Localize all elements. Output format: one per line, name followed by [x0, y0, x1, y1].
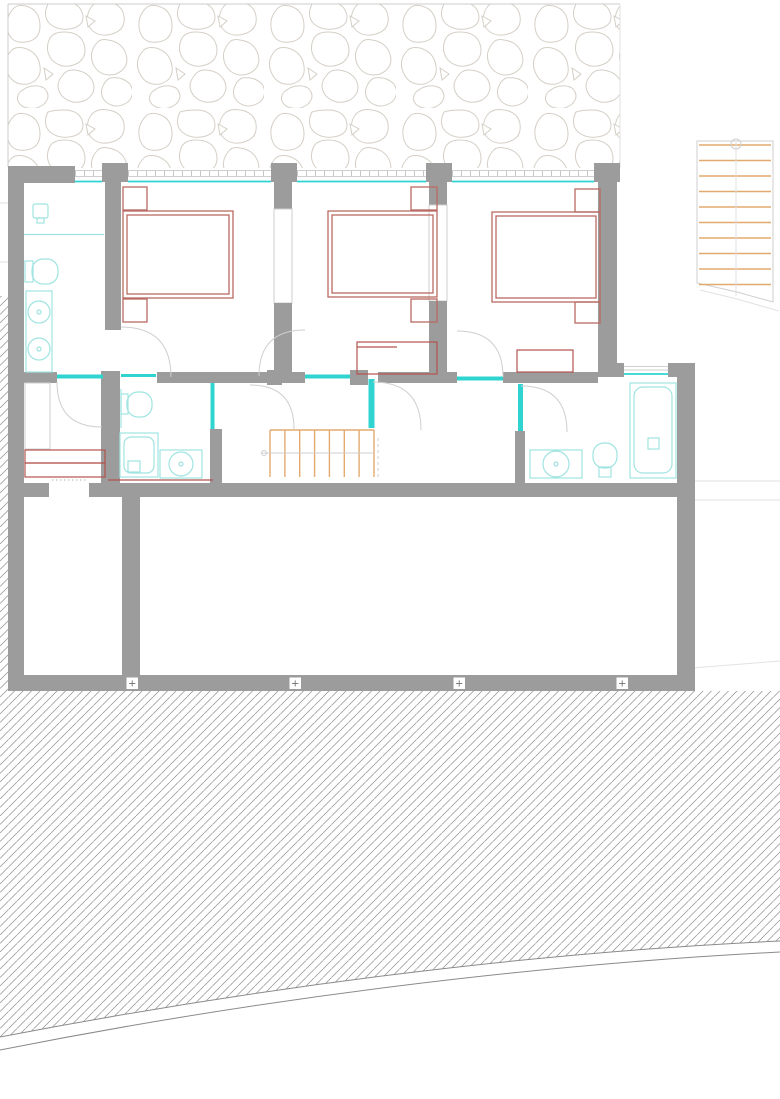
- level-marker-2: +: [289, 677, 302, 690]
- bed-1-nightstand-bottom: [123, 299, 147, 322]
- wall-bath1-bed1: [105, 182, 121, 330]
- wall-pillar-a: [102, 163, 128, 182]
- toilet-1-bowl: [32, 259, 58, 284]
- exterior-staircase: [697, 139, 779, 311]
- wall-lower-divider: [122, 492, 140, 677]
- door-arc-stair-hall: [373, 382, 421, 430]
- wall-bed2-bed3-top: [429, 182, 447, 205]
- shower-3-drain: [648, 438, 659, 449]
- terrain-line-right-3: [692, 661, 780, 668]
- wall-right-exterior: [677, 371, 695, 691]
- closet-cabinet: [25, 383, 50, 449]
- bathroom-3: [530, 383, 676, 478]
- bed-1-mattress: [127, 215, 229, 294]
- bed-3-nightstand-bottom: [575, 302, 600, 323]
- wall-mid-c: [157, 372, 268, 383]
- bathroom-1: [24, 204, 104, 372]
- sink-1a: [28, 301, 50, 323]
- bed-2-frame: [328, 211, 437, 297]
- toilet-3-bowl: [593, 443, 617, 468]
- sink-3: [543, 451, 569, 477]
- wall-bed1-bed2-top: [274, 182, 292, 209]
- stone-paving-fill: [8, 4, 620, 168]
- bed-3-nightstand-top: [575, 189, 600, 212]
- walls: [8, 163, 695, 691]
- wall-mid-pillar-2: [350, 370, 368, 385]
- bed-3-mattress: [496, 216, 596, 298]
- wall-bath3-left: [515, 431, 525, 483]
- level-marker-3-symbol: +: [455, 679, 463, 690]
- wall-floor-band: [89, 483, 695, 497]
- shower-3-tray: [634, 387, 672, 473]
- window-bathroom-right: [624, 367, 668, 375]
- wall-niche-2: [429, 205, 447, 301]
- wall-mid-a: [24, 372, 57, 383]
- interior-staircase: [262, 430, 375, 477]
- wall-fixture-handle: [37, 218, 44, 223]
- wall-hall-left: [210, 429, 222, 483]
- stone-paving-area: [8, 4, 620, 168]
- sink-1b: [28, 338, 50, 360]
- terrain-hatch-bottom: [0, 691, 780, 1037]
- door-arc-bedroom-3: [457, 331, 503, 377]
- wall-bath3-top-left: [598, 363, 624, 377]
- door-arc-hall: [250, 385, 294, 429]
- sink-2-drain: [179, 462, 183, 466]
- bedroom-3-furniture: [492, 189, 600, 372]
- bed-2-mattress: [332, 215, 433, 293]
- wall-mid-pillar-1: [267, 370, 282, 385]
- sink-1b-drain: [37, 347, 41, 351]
- wall-pillar-d: [594, 163, 620, 182]
- wall-mid-b: [101, 371, 120, 483]
- level-marker-2-symbol: +: [291, 679, 299, 690]
- terrain: [0, 203, 780, 1050]
- floor-plan-drawing: + + + +: [0, 0, 780, 1099]
- door-arc-bedroom-1: [121, 327, 171, 377]
- wall-fixture: [33, 204, 48, 218]
- bedroom-2-furniture: [328, 187, 437, 374]
- wall-mid-f: [503, 372, 598, 383]
- toilet-2-bowl: [127, 392, 152, 417]
- vanity-3-counter: [530, 450, 582, 478]
- wall-pillar-b: [271, 163, 297, 182]
- bed-1-nightstand-top: [123, 187, 147, 210]
- wall-right-upper: [598, 182, 617, 374]
- wardrobe-shelf-bottom: [25, 463, 105, 477]
- exterior-stair-outline: [697, 141, 773, 302]
- terrain-hatch-left-strip: [0, 296, 8, 691]
- bathroom-2: [108, 389, 213, 480]
- window-span-4: [452, 171, 594, 182]
- window-span-2: [128, 171, 271, 182]
- door-arcs: [52, 327, 567, 480]
- wall-pillar-c: [426, 163, 452, 182]
- wall-floor-band-left: [8, 483, 49, 497]
- level-marker-1-symbol: +: [128, 679, 136, 690]
- level-marker-1: +: [126, 677, 139, 690]
- bedroom-1-furniture: [123, 187, 233, 322]
- vanity-2-counter: [160, 450, 202, 478]
- wall-bottom-exterior: [8, 675, 695, 691]
- door-arc-bathroom-3: [521, 386, 567, 432]
- storage-room: [25, 383, 105, 477]
- wardrobe-shelf-top: [25, 450, 105, 463]
- wall-niche-1: [274, 209, 292, 303]
- exterior-stair-treads: [699, 145, 771, 285]
- level-marker-4: +: [616, 677, 629, 690]
- sink-1a-drain: [37, 310, 41, 314]
- sink-2: [169, 452, 193, 476]
- wall-mid-d: [282, 372, 305, 383]
- shower-3-base: [630, 383, 676, 478]
- shower-2-drain: [128, 461, 140, 472]
- bed-1-frame: [123, 211, 233, 298]
- floor-plan-svg: + + + +: [0, 0, 780, 1099]
- windows: [75, 171, 668, 375]
- sink-3-drain: [554, 462, 558, 466]
- window-span-3: [297, 171, 426, 182]
- level-marker-3: +: [453, 677, 466, 690]
- level-marker-4-symbol: +: [618, 679, 626, 690]
- bed-3-frame: [492, 212, 600, 302]
- bed-3-bench: [517, 350, 573, 372]
- window-span-1: [75, 171, 102, 182]
- wall-left-exterior: [8, 166, 24, 691]
- door-arc-storage-room: [57, 382, 102, 427]
